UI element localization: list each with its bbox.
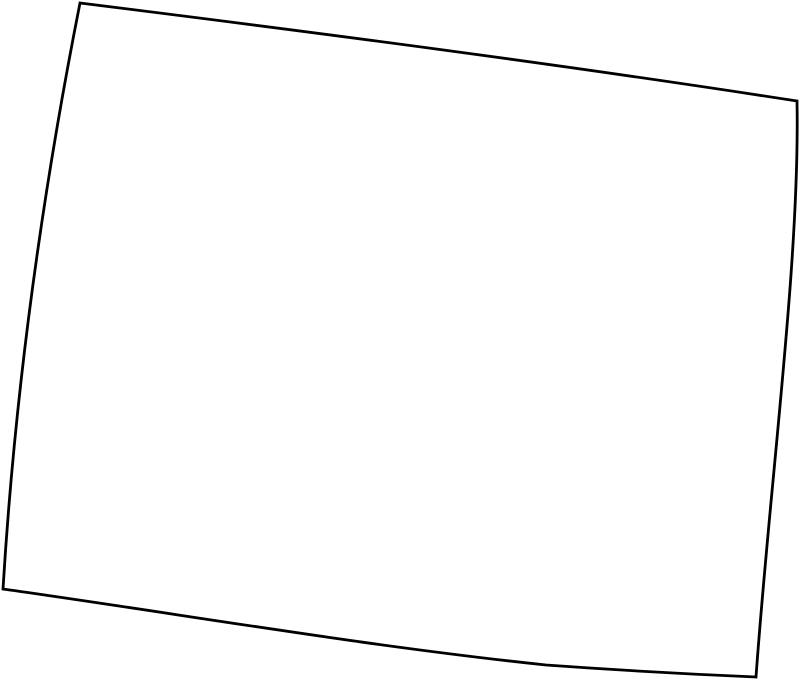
map-canvas	[0, 0, 800, 683]
state-outline-svg	[0, 0, 800, 683]
state-outline-path	[3, 3, 797, 677]
